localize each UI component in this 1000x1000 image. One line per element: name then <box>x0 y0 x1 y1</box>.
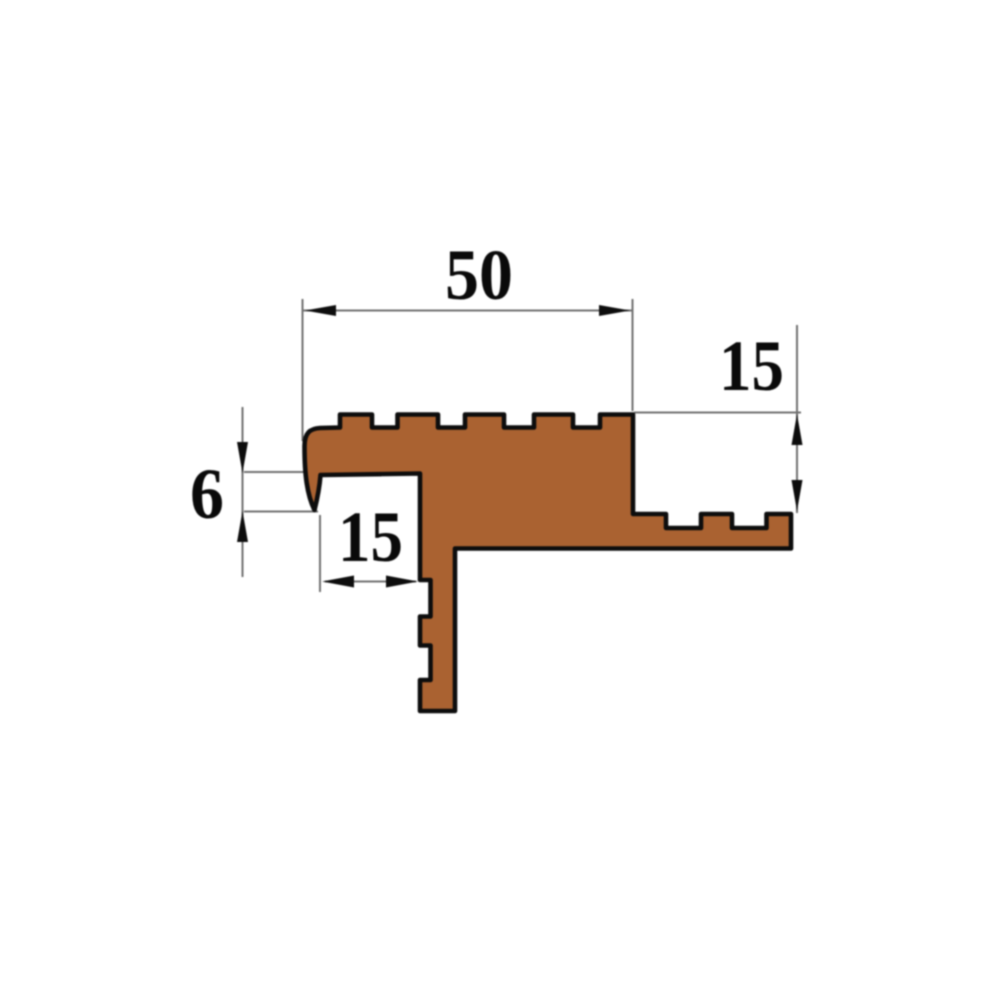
svg-text:15: 15 <box>338 497 403 577</box>
svg-text:15: 15 <box>719 326 784 406</box>
svg-text:50: 50 <box>445 235 513 315</box>
svg-text:6: 6 <box>190 454 224 534</box>
